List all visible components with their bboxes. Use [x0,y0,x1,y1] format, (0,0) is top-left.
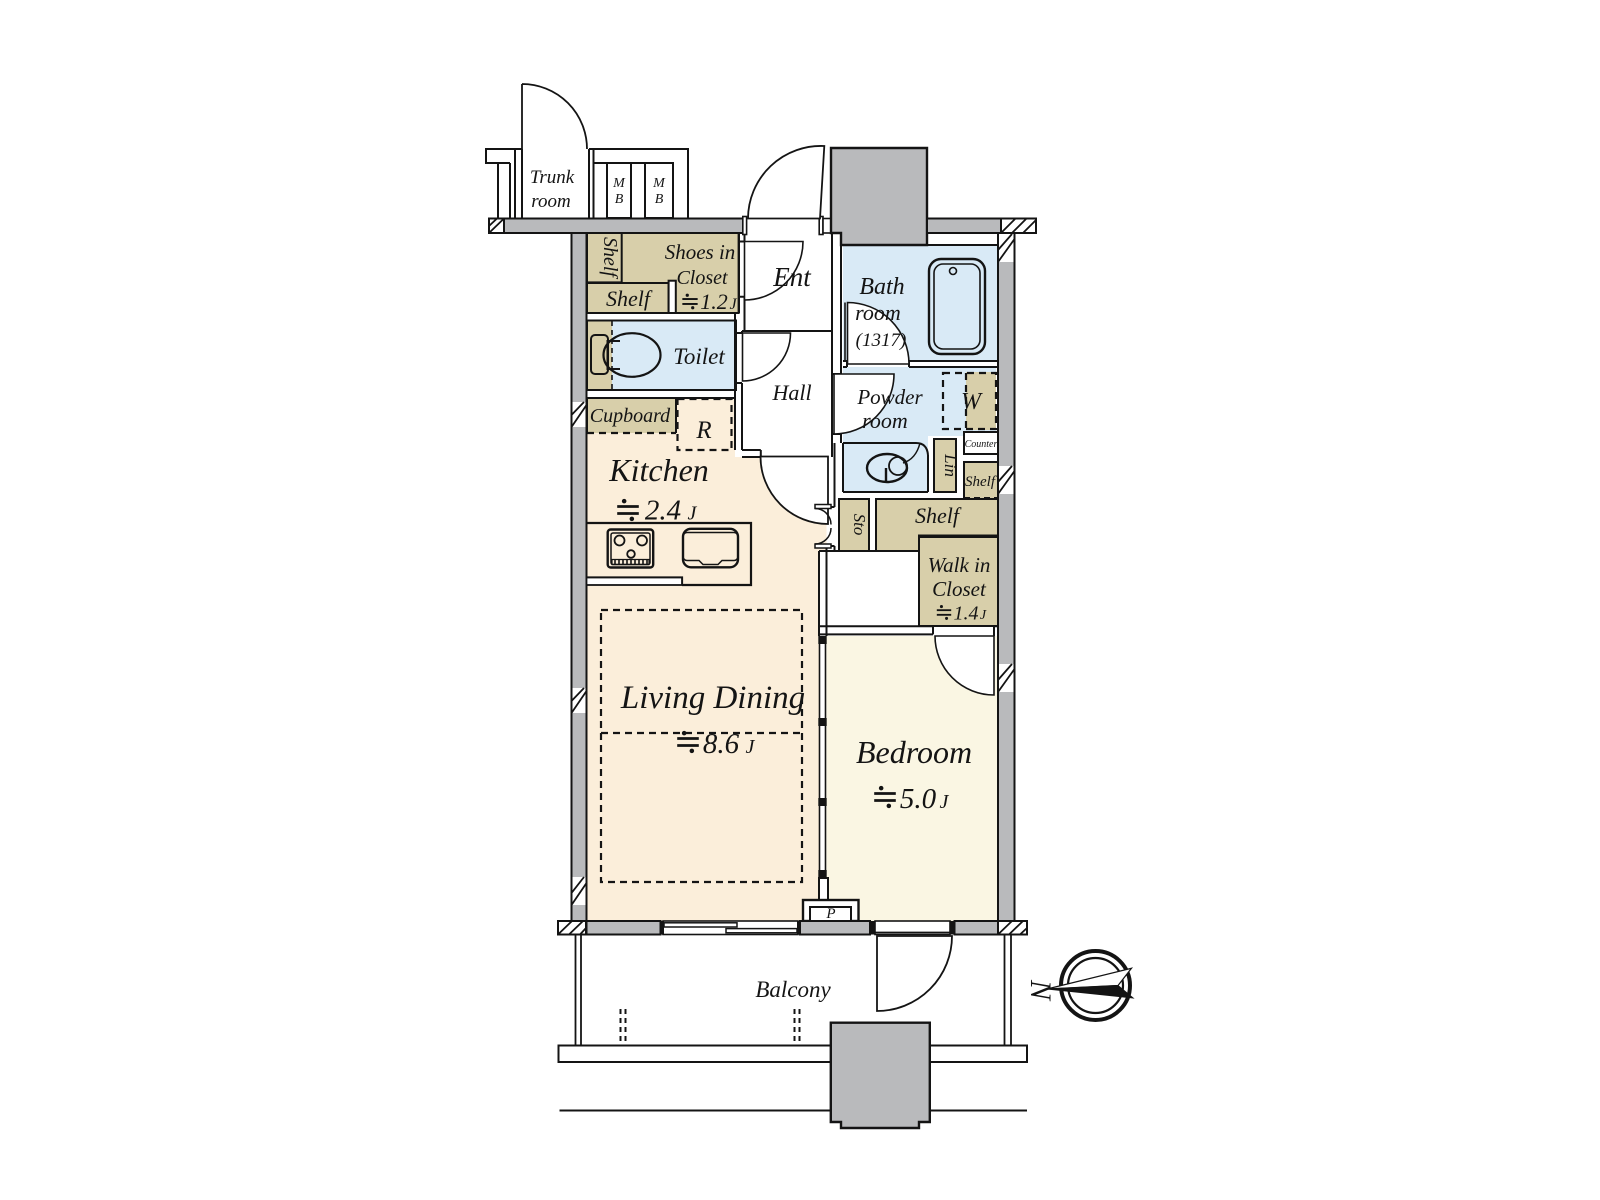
svg-text:Bedroom: Bedroom [856,734,972,770]
svg-text:2.4: 2.4 [645,495,681,527]
svg-text:Kitchen: Kitchen [608,452,709,488]
svg-text:M: M [612,176,626,191]
svg-text:1.4: 1.4 [954,603,979,625]
svg-text:J: J [746,736,756,758]
svg-text:Bath: Bath [859,274,904,300]
svg-text:J: J [729,296,737,313]
svg-text:R: R [695,417,711,444]
svg-text:Counter: Counter [965,439,998,450]
svg-text:Shelf: Shelf [599,237,621,279]
svg-text:room: room [855,300,901,325]
svg-text:Ent: Ent [772,262,812,292]
svg-text:Living Dining: Living Dining [620,680,805,716]
svg-text:(1317): (1317) [856,330,907,351]
svg-text:Lin: Lin [941,453,960,477]
svg-text:Shelf: Shelf [606,286,653,311]
svg-text:1.2: 1.2 [700,289,728,314]
svg-text:room: room [862,408,908,433]
svg-text:room: room [531,191,570,212]
svg-text:Hall: Hall [771,380,811,405]
svg-text:Closet: Closet [676,267,728,289]
svg-text:5.0: 5.0 [900,783,937,815]
svg-text:Balcony: Balcony [755,977,831,1002]
svg-text:Shoes in: Shoes in [665,240,736,264]
svg-text:Shelf: Shelf [915,503,962,528]
svg-text:Walk in: Walk in [928,553,991,577]
svg-text:W: W [961,389,983,415]
svg-text:Powder: Powder [856,385,923,409]
svg-text:J: J [688,503,698,525]
svg-text:Shelf: Shelf [965,474,997,490]
svg-text:J: J [980,608,987,623]
svg-text:Sto: Sto [850,514,869,536]
svg-text:N: N [1024,979,1057,1002]
svg-text:B: B [655,192,664,207]
svg-text:Trunk: Trunk [530,167,575,188]
svg-text:M: M [652,176,666,191]
svg-text:J: J [940,791,950,813]
svg-text:8.6: 8.6 [703,728,740,760]
svg-text:Cupboard: Cupboard [590,405,671,427]
svg-text:B: B [615,192,624,207]
svg-text:P: P [825,906,835,922]
svg-text:Closet: Closet [932,577,987,601]
svg-text:Toilet: Toilet [673,344,725,369]
